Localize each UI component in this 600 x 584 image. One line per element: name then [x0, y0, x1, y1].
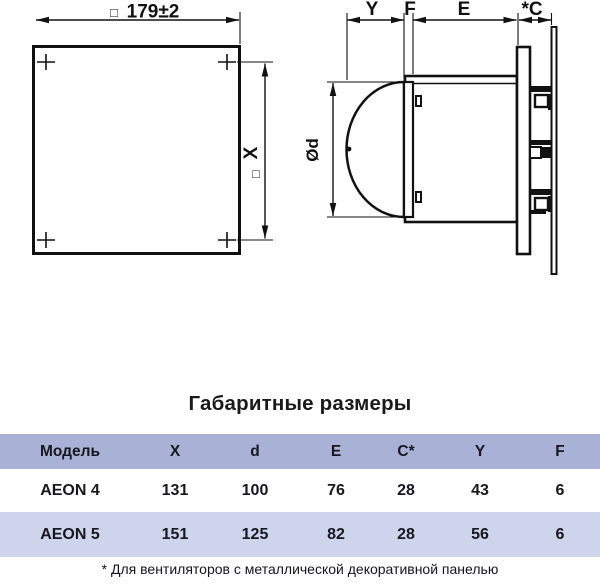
dim-label-y: Y [366, 0, 379, 20]
table-cell: 151 [140, 526, 210, 544]
dome-center-mark [347, 147, 352, 152]
dimensions-table: Модель X d E C* Y F AEON 4 131 100 76 28… [0, 434, 600, 557]
spec-sheet: □ 179±2 X □ [0, 0, 600, 584]
fastening-clip-top [530, 86, 552, 110]
front-ring-outline [404, 82, 413, 217]
model-cell: AEON 5 [0, 526, 140, 544]
table-cell: 76 [300, 482, 372, 500]
table-row: AEON 4 131 100 76 28 43 6 [0, 469, 600, 512]
table-cell: 82 [300, 526, 372, 544]
model-cell: AEON 4 [0, 482, 140, 500]
dim-label-e: E [458, 0, 471, 20]
table-header-cell: Модель [0, 443, 140, 461]
table-cell: 28 [372, 526, 440, 544]
flange-plate-outline [517, 47, 530, 254]
diameter-label: Ød [303, 138, 322, 162]
table-cell: 100 [210, 482, 300, 500]
side-view-drawing: Y F E *C Ød [303, 0, 557, 274]
square-symbol: □ [252, 167, 260, 181]
decorative-panel-outline [552, 27, 557, 274]
table-footnote: * Для вентиляторов с металлической декор… [0, 561, 600, 577]
table-cell: 6 [520, 526, 600, 544]
fastening-clip-middle [530, 140, 552, 158]
front-panel-outline [34, 47, 240, 254]
table-header-cell: F [520, 443, 600, 461]
table-cell: 28 [372, 482, 440, 500]
width-dimension-label: 179±2 [127, 2, 180, 23]
body-latch-bottom [416, 192, 421, 202]
table-row: AEON 5 151 125 82 28 56 6 [0, 512, 600, 557]
table-cell: 6 [520, 482, 600, 500]
dim-label-c: *C [521, 0, 542, 20]
table-cell: 43 [440, 482, 520, 500]
table-cell: 125 [210, 526, 300, 544]
body-latch-top [416, 96, 421, 106]
dome-cover-outline [347, 82, 404, 217]
table-title: Габаритные размеры [0, 392, 600, 416]
table-header-cell: d [210, 443, 300, 461]
table-header-row: Модель X d E C* Y F [0, 434, 600, 469]
fastening-clip-bottom [530, 189, 552, 214]
technical-drawings: □ 179±2 X □ [0, 0, 600, 390]
table-header-cell: Y [440, 443, 520, 461]
table-cell: 56 [440, 526, 520, 544]
table-header-cell: E [300, 443, 372, 461]
square-symbol: □ [110, 5, 118, 20]
front-view-drawing: □ 179±2 X □ [34, 2, 274, 254]
dim-label-f: F [404, 0, 416, 20]
height-dimension-label: X [241, 146, 262, 159]
table-header-cell: C* [372, 443, 440, 461]
table-header-cell: X [140, 443, 210, 461]
table-cell: 131 [140, 482, 210, 500]
